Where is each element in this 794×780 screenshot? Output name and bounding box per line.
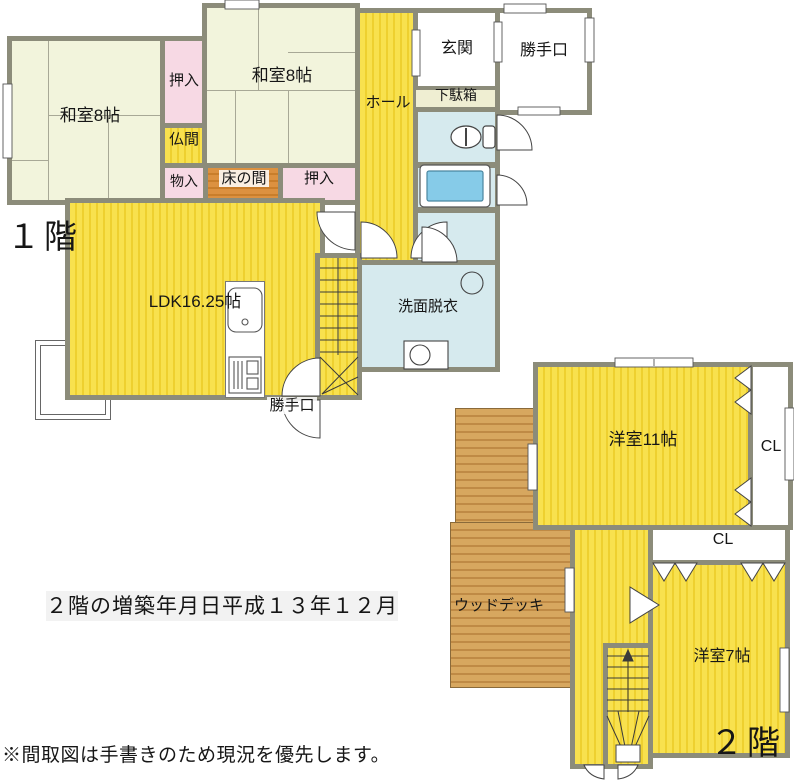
genkan-label: 玄関 bbox=[422, 40, 492, 58]
katteguchi-room-label: 勝手口 bbox=[503, 42, 585, 60]
toilet-icon bbox=[451, 126, 495, 148]
yoshitsu-7-label: 洋室7帖 bbox=[672, 648, 772, 666]
floor2-label: ２階 bbox=[702, 726, 792, 764]
katteguchi-door-label: 勝手口 bbox=[256, 397, 328, 414]
tokonoma-label: 床の間 bbox=[206, 170, 282, 187]
extension-date-note: ２階の増築年月日平成１３年１２月 bbox=[46, 591, 398, 621]
yoshitsu-11-label: 洋室11帖 bbox=[578, 430, 708, 450]
wood-deck-label: ウッドデッキ bbox=[446, 597, 552, 614]
getabako-label: 下駄箱 bbox=[416, 87, 496, 103]
washing-machine-icon bbox=[404, 341, 448, 369]
door-wedge-2f bbox=[630, 587, 659, 623]
basin-icon bbox=[461, 272, 483, 294]
closet-2-label: CL bbox=[697, 531, 749, 549]
stairs-1f-lines bbox=[320, 258, 358, 395]
bathtub-icon bbox=[420, 165, 490, 207]
butsuma-label: 仏間 bbox=[154, 131, 214, 148]
monoire-label: 物入 bbox=[156, 173, 212, 189]
ldk-label: LDK16.25帖 bbox=[125, 292, 265, 312]
oshiire-top-label: 押入 bbox=[156, 72, 212, 89]
closet-1-label: CL bbox=[750, 438, 792, 456]
senmen-datsui-label: 洗面脱衣 bbox=[376, 298, 480, 315]
hall-label: ホール bbox=[352, 94, 424, 111]
floorplan-canvas: １階 和室8帖 押入 和室8帖 仏間 物入 床の間 押入 ホール 玄関 勝手口 … bbox=[0, 0, 794, 780]
washitsu-left-label: 和室8帖 bbox=[25, 106, 155, 126]
washitsu-top-label: 和室8帖 bbox=[222, 66, 342, 86]
oshiire-right-label: 押入 bbox=[283, 170, 355, 187]
disclaimer-note: ※間取図は手書きのため現況を優先します。 bbox=[2, 745, 392, 767]
stairs-2f-lines bbox=[607, 650, 649, 762]
stove-icon bbox=[229, 357, 261, 393]
floor1-label: １階 bbox=[6, 220, 82, 258]
